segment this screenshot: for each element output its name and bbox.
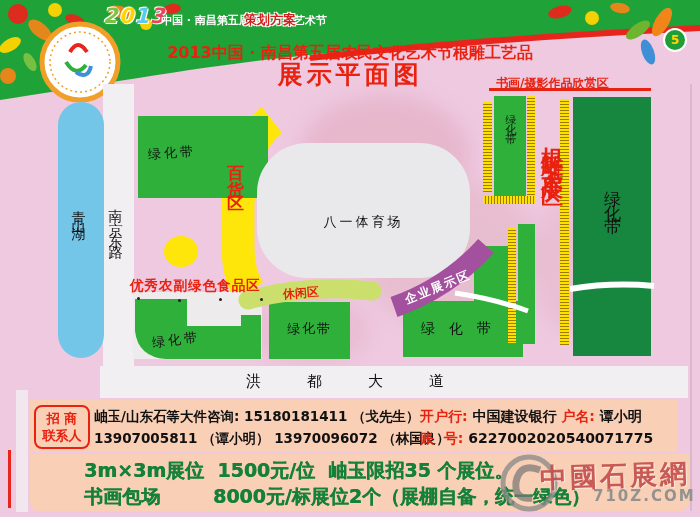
plaza-dot (260, 298, 263, 301)
art-zone-underline (489, 88, 651, 91)
stadium-label: 八一体育场 (257, 213, 470, 231)
green-belt-label: 绿化带 (269, 320, 350, 338)
road-south-label: 洪都大道 (246, 372, 490, 391)
green-belt-label: 绿化带 (502, 106, 517, 133)
department-zone-label: 百货区 (225, 152, 248, 197)
green-belt-label: 绿化带 (147, 142, 196, 163)
plaza-dot (178, 299, 181, 302)
green-belt-label: 绿化带 (403, 320, 523, 338)
food-zone-label: 优秀农副绿色食品区 (130, 277, 261, 295)
leisure-zone-label: 休闲区 (282, 284, 319, 303)
plaza-dot (219, 298, 222, 301)
green-belt-label: 绿化带 (602, 178, 625, 217)
poster-root: 2013 中国 · 南昌第五届农民文化艺术节 策划方案 5 2013中国 · 南… (0, 0, 700, 517)
road-west-label: 南京东路 (107, 198, 125, 246)
root-carving-zone-label: 根雕艺术展区 (537, 129, 567, 177)
white-path-curve (570, 285, 654, 289)
watermark-site-url: 710Z.COM (593, 487, 696, 505)
plaza-dot (137, 297, 140, 300)
lake-label: 青山湖 (70, 200, 88, 224)
white-path-curve (455, 293, 528, 311)
